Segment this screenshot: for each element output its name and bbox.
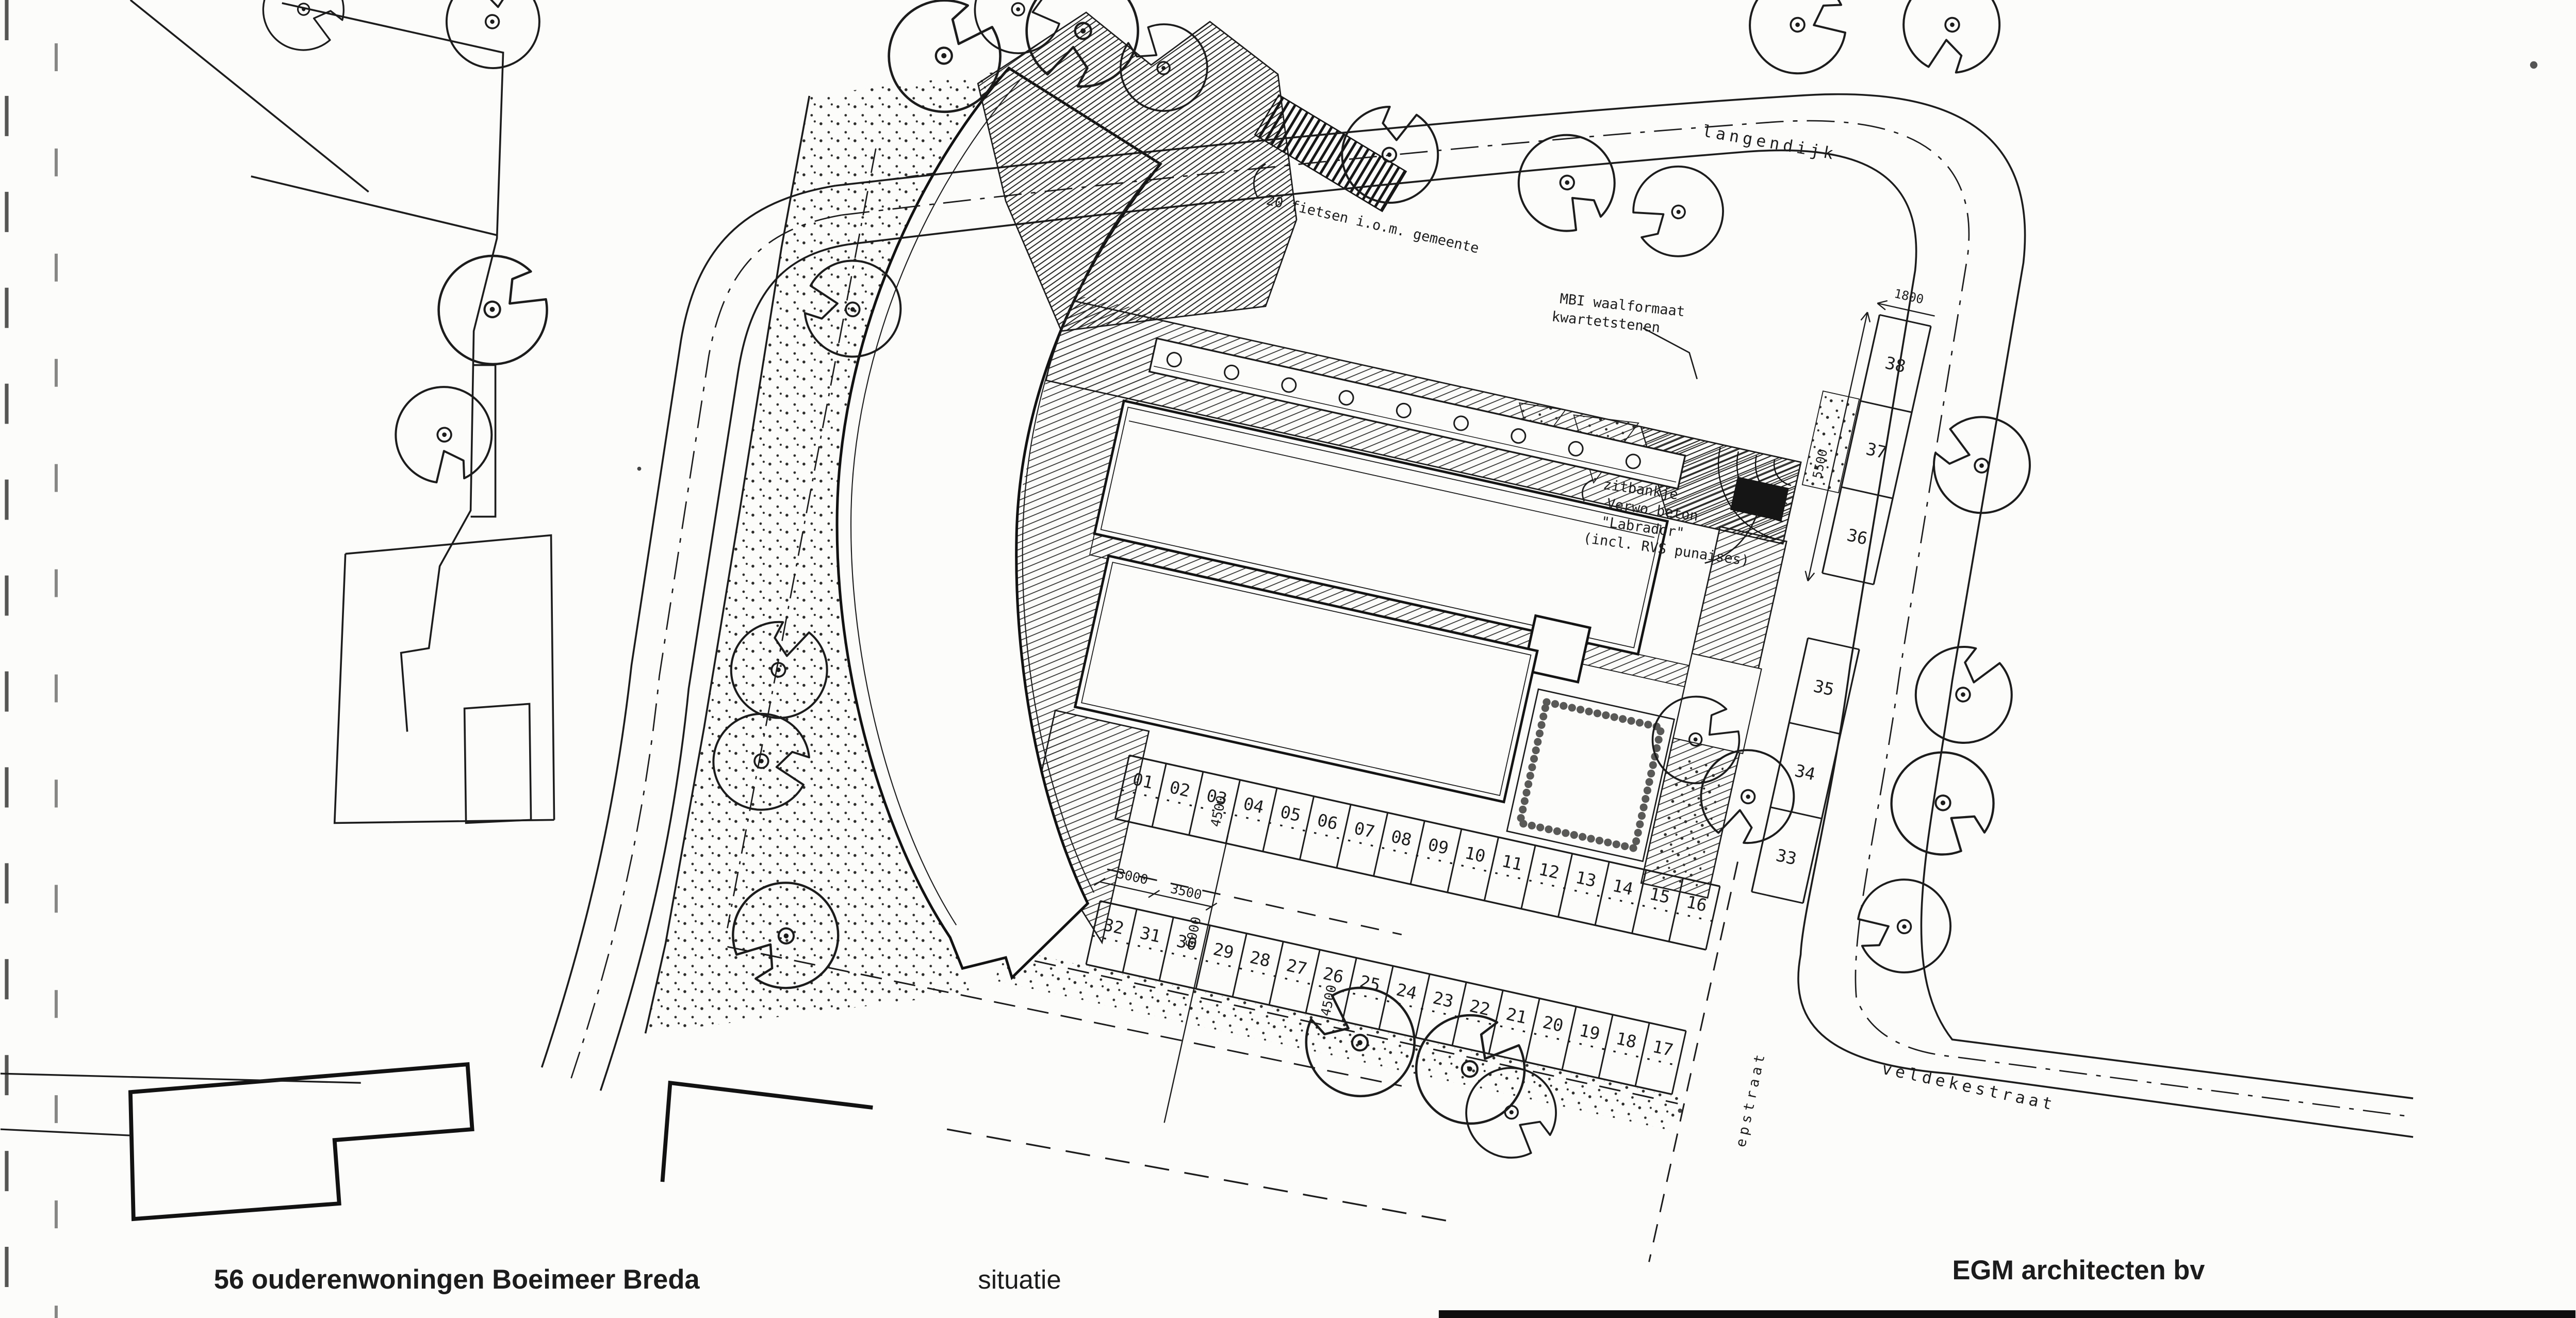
parking-stall-number: 19 [1578, 1020, 1602, 1044]
parking-stall-number: 23 [1431, 987, 1455, 1012]
parking-stall-number: 18 [1614, 1028, 1638, 1052]
site-plan-drawing: 01020304050607080910111213141516 3231302… [0, 0, 2576, 1318]
parking-stall-number: 24 [1394, 980, 1419, 1004]
parking-stall-number: 12 [1537, 859, 1561, 883]
parking-stall-number: 36 [1845, 525, 1869, 549]
drawing-type-label: situatie [978, 1265, 1061, 1294]
architect-firm: EGM architecten bv [1952, 1256, 2205, 1286]
parking-stall-number: 08 [1389, 826, 1414, 850]
parking-stall-number: 15 [1648, 883, 1672, 907]
scan-speck [637, 467, 642, 471]
parking-stall-number: 02 [1168, 777, 1192, 801]
parking-stall-number: 28 [1248, 947, 1272, 971]
parking-stall-number: 34 [1793, 760, 1817, 785]
scan-speck [2530, 61, 2537, 69]
parking-stall-number: 17 [1651, 1036, 1675, 1061]
parking-stall-number: 32 [1102, 915, 1126, 939]
scanned-site-plan-sheet: 01020304050607080910111213141516 3231302… [0, 0, 2576, 1318]
sheet-bottom-edge [1439, 1310, 2575, 1318]
parking-stall-number: 35 [1812, 676, 1836, 700]
parking-stall-number: 31 [1138, 922, 1162, 947]
parking-stall-number: 07 [1352, 818, 1376, 842]
parking-stall-number: 38 [1883, 352, 1908, 377]
parking-stall-number: 20 [1541, 1012, 1565, 1036]
parking-stall-number: 13 [1574, 867, 1598, 891]
parking-stall-number: 21 [1504, 1004, 1529, 1028]
parking-stall-number: 33 [1774, 845, 1798, 869]
parking-stall-number: 05 [1278, 802, 1303, 826]
project-title: 56 ouderenwoningen Boeimeer Breda [214, 1265, 700, 1295]
parking-stall-number: 14 [1611, 875, 1635, 900]
parking-stall-number: 01 [1131, 769, 1155, 793]
parking-stall-number: 09 [1426, 834, 1450, 858]
parking-stall-number: 27 [1285, 955, 1309, 979]
parking-stall-number: 06 [1316, 810, 1340, 834]
parking-stall-number: 11 [1500, 851, 1524, 875]
parking-stall-number: 29 [1211, 939, 1236, 963]
parking-stall-number: 04 [1241, 793, 1266, 818]
parking-stall-number: 10 [1463, 842, 1487, 867]
parking-stall-number: 16 [1684, 891, 1709, 916]
garden-court [1507, 689, 1675, 861]
